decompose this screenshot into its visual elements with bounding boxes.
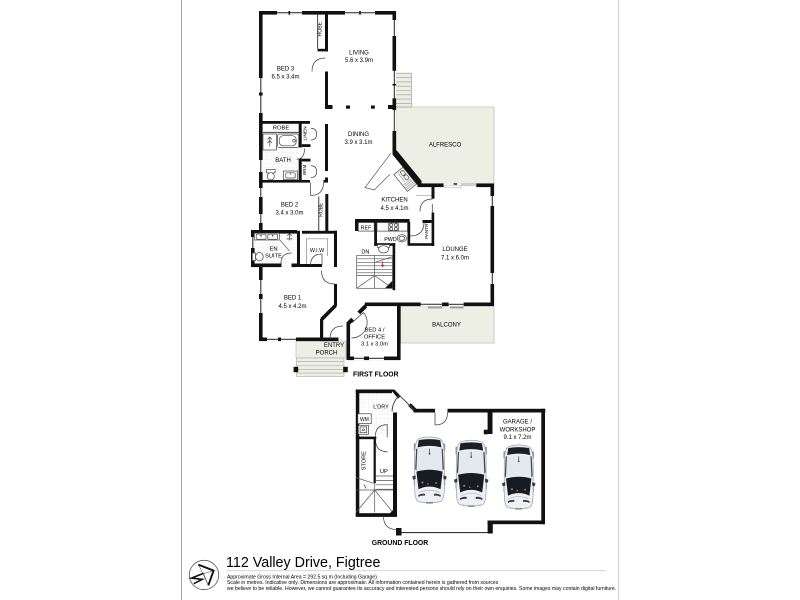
svg-text:BALCONY: BALCONY bbox=[432, 323, 461, 329]
svg-text:BED 1: BED 1 bbox=[284, 296, 302, 302]
svg-text:9.1 x 7.2m: 9.1 x 7.2m bbox=[503, 435, 531, 441]
svg-text:3.9 x 3.1m: 3.9 x 3.1m bbox=[344, 140, 372, 146]
svg-text:KITCHEN: KITCHEN bbox=[381, 198, 407, 204]
svg-text:ROBE: ROBE bbox=[318, 202, 324, 217]
svg-text:PANTRY: PANTRY bbox=[424, 221, 429, 239]
svg-text:REF: REF bbox=[361, 226, 372, 232]
svg-text:GROUND FLOOR: GROUND FLOOR bbox=[372, 540, 429, 547]
svg-text:DINING: DINING bbox=[348, 132, 369, 138]
svg-text:7.1 x 6.0m: 7.1 x 6.0m bbox=[441, 255, 469, 261]
svg-text:BED 3: BED 3 bbox=[277, 66, 295, 72]
svg-text:STORE: STORE bbox=[361, 451, 367, 470]
svg-text:BED 2: BED 2 bbox=[281, 203, 299, 209]
svg-text:ENTRY: ENTRY bbox=[324, 343, 344, 349]
svg-text:L'DRY: L'DRY bbox=[373, 405, 389, 411]
svg-text:3.1 x 3.0m: 3.1 x 3.0m bbox=[361, 342, 388, 348]
svg-text:4.5 x 4.2m: 4.5 x 4.2m bbox=[278, 304, 306, 310]
svg-text:4.5 x 4.1m: 4.5 x 4.1m bbox=[380, 206, 408, 212]
svg-text:BRM: BRM bbox=[302, 165, 307, 175]
svg-text:BATH: BATH bbox=[275, 158, 291, 164]
svg-text:UP: UP bbox=[380, 469, 388, 475]
svg-text:WORKSHOP: WORKSHOP bbox=[500, 428, 536, 434]
svg-text:3.4 x 3.0m: 3.4 x 3.0m bbox=[275, 211, 303, 217]
svg-text:BED 4 /: BED 4 / bbox=[365, 328, 385, 334]
svg-text:LINEN: LINEN bbox=[302, 126, 308, 141]
svg-text:OFFICE: OFFICE bbox=[364, 335, 385, 341]
svg-text:PWD: PWD bbox=[384, 237, 397, 243]
svg-text:FIRST FLOOR: FIRST FLOOR bbox=[353, 372, 399, 379]
svg-text:5.6 x 3.9m: 5.6 x 3.9m bbox=[345, 58, 373, 64]
svg-text:we believe to be reliable. How: we believe to be reliable. However, we c… bbox=[227, 586, 616, 592]
svg-text:WM: WM bbox=[360, 417, 369, 423]
svg-text:PORCH: PORCH bbox=[316, 351, 338, 357]
svg-text:LIVING: LIVING bbox=[349, 51, 369, 57]
svg-text:ALFRESCO: ALFRESCO bbox=[429, 143, 462, 149]
svg-text:6.5 x 3.4m: 6.5 x 3.4m bbox=[271, 74, 299, 80]
svg-text:ROBE: ROBE bbox=[317, 21, 323, 36]
svg-text:SUITE: SUITE bbox=[265, 253, 282, 259]
svg-text:GARAGE /: GARAGE / bbox=[503, 420, 532, 426]
svg-text:W.I.W: W.I.W bbox=[310, 248, 325, 254]
svg-text:ROBE: ROBE bbox=[273, 126, 290, 132]
svg-text:EN: EN bbox=[269, 247, 277, 253]
svg-text:112 Valley Drive, Figtree: 112 Valley Drive, Figtree bbox=[226, 555, 380, 571]
svg-text:DN: DN bbox=[361, 250, 369, 256]
svg-text:LOUNGE: LOUNGE bbox=[442, 247, 467, 253]
